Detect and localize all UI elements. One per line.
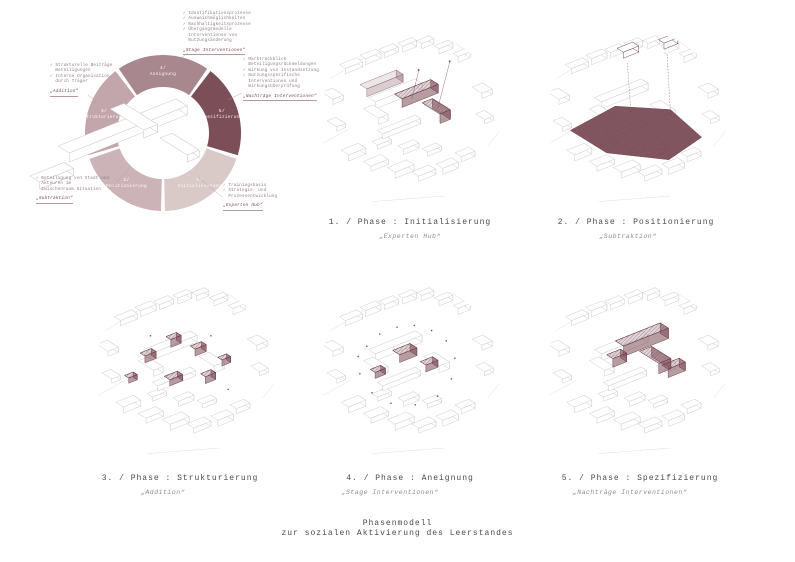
callout-strukturierung: ✓ Strukturelle Beiträge Beteiligungen✓ I… bbox=[50, 64, 132, 97]
caption-phase-1: 1. / Phase : Initialisierung bbox=[329, 218, 491, 227]
poster-board: 1/Initialisierung2/Positionierung3/Struk… bbox=[0, 0, 795, 562]
ring-segment-number: 5/ bbox=[219, 108, 225, 114]
subtitle-phase-4: „Stage Interventionen“ bbox=[342, 489, 439, 496]
ring-segment-label: Initialisierung bbox=[178, 184, 222, 189]
callout-line: Wirkungsüberprüfung bbox=[243, 85, 313, 90]
axon-drawing-phase-3 bbox=[90, 277, 280, 467]
ring-segment-label: Strukturierung bbox=[84, 115, 125, 120]
callout-quote: „Subtraktion“ bbox=[36, 196, 73, 204]
axon-drawing-phase-5 bbox=[541, 277, 731, 467]
callout-quote: „Nachträge Interventionen“ bbox=[243, 94, 317, 102]
caption-phase-2: 2. / Phase : Positionierung bbox=[558, 218, 715, 227]
subtitle-phase-1: „Experten Hub“ bbox=[379, 233, 441, 240]
ring-segment-spezifizierung bbox=[191, 71, 241, 155]
callout-quote: „Experten Hub“ bbox=[223, 203, 263, 211]
callout-spezifizierung: ✓ Marktrückblick Beteiligungsrückmeldung… bbox=[243, 58, 313, 101]
caption-phase-5: 5. / Phase : Spezifizierung bbox=[562, 474, 719, 483]
callout-aneignung: ✓ Identifikationsprozesse✓ Ausweichmögli… bbox=[183, 12, 279, 55]
callout-positionierung: ✓ Beteiligung von Stadt und Akteuren im … bbox=[36, 177, 122, 204]
axon-drawing-phase-2 bbox=[541, 25, 731, 215]
poster-title-line2: zur sozialen Aktivierung des Leerstandes bbox=[0, 529, 795, 538]
ring-segment-number: 3/ bbox=[101, 108, 107, 114]
subtitle-phase-5: „Nachträge Interventionen“ bbox=[573, 489, 687, 496]
callout-line: Zwischenraum Situation bbox=[36, 188, 122, 193]
subtitle-phase-3: „Addition“ bbox=[141, 489, 185, 496]
callout-quote: „Addition“ bbox=[50, 89, 78, 97]
axon-drawing-phase-1 bbox=[315, 25, 505, 215]
poster-title-line1: Phasenmodell bbox=[0, 519, 795, 528]
subtitle-phase-2: „Subtraktion“ bbox=[599, 233, 656, 240]
ring-segment-label: Spezifizierung bbox=[202, 115, 243, 120]
caption-phase-3: 3. / Phase : Strukturierung bbox=[102, 474, 259, 483]
callout-initialisierung: ✓ Trainingsbasis✓ Strategie- und Prozess… bbox=[223, 184, 295, 211]
ring-segment-number: 4/ bbox=[160, 65, 166, 71]
caption-phase-4: 4. / Phase : Aneignung bbox=[346, 474, 474, 483]
callout-line: Prozessentwicklung bbox=[223, 195, 295, 200]
axon-drawing-phase-4 bbox=[315, 277, 505, 467]
ring-segment-number: 2/ bbox=[123, 177, 129, 183]
callout-quote: „Stage Interventionen“ bbox=[183, 48, 245, 56]
callout-line: Nutzungsänderung bbox=[183, 39, 279, 44]
ring-segment-label: Aneignung bbox=[150, 72, 176, 77]
callout-line: durch Träger bbox=[50, 80, 132, 85]
